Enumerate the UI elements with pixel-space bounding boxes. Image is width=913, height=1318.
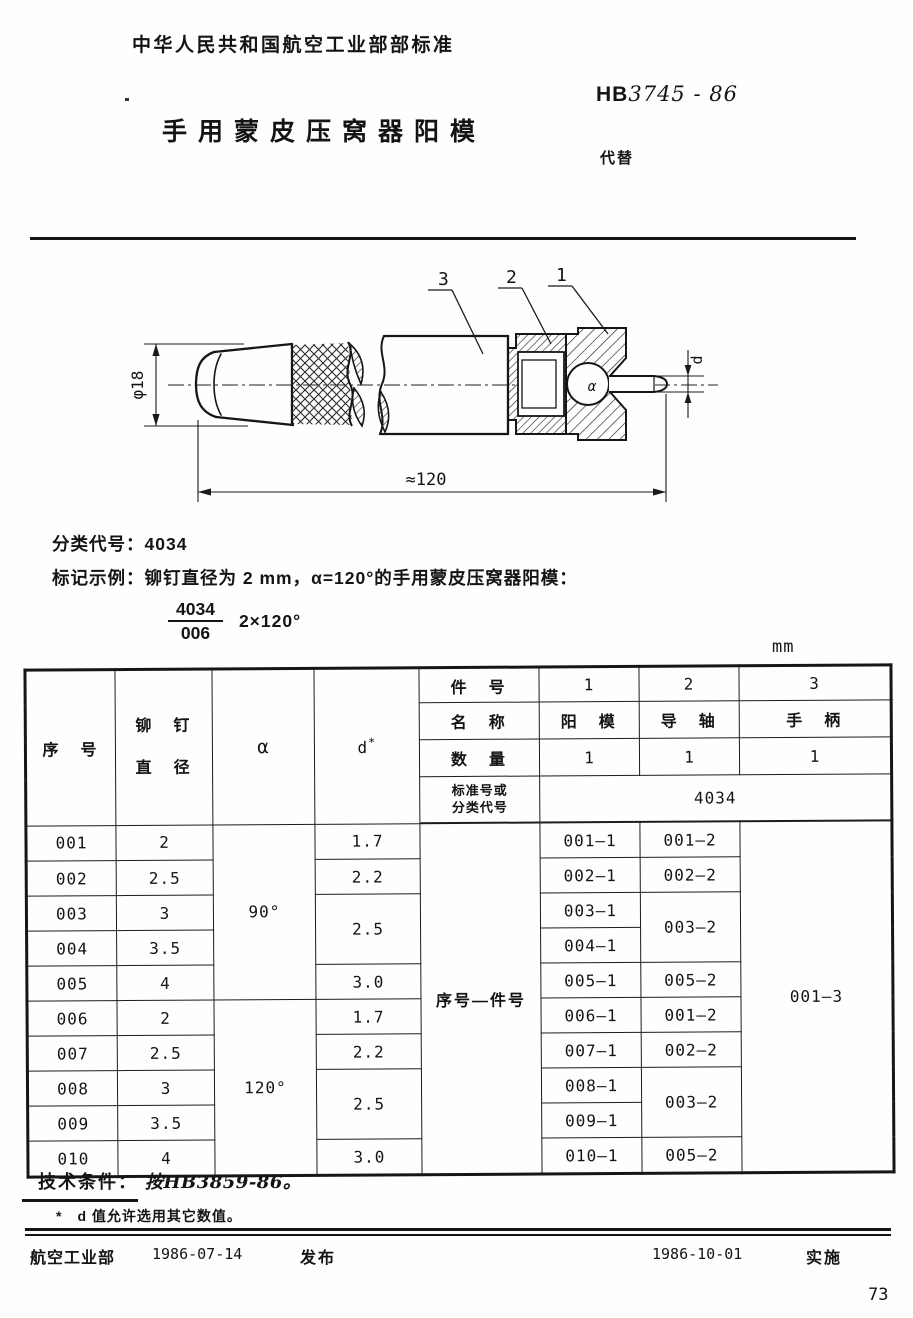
dim-length-label: ≈120 (406, 470, 447, 490)
implementation-label: 实施 (806, 1244, 842, 1268)
standard-number: HB3745 - 86 (596, 82, 738, 107)
break-lens-3 (378, 392, 388, 432)
document-page: 中华人民共和国航空工业部部标准 HB3745 - 86 手用蒙皮压窝器阳模 代替 (0, 0, 913, 1318)
cell-span-label: 序号—件号 (420, 822, 542, 1174)
cell-dia: 2.5 (117, 1035, 214, 1071)
page-title: 手用蒙皮压窝器阳模 (162, 112, 486, 148)
header-rule (30, 237, 856, 240)
arrow-up (152, 344, 159, 356)
designation-fraction: 4034 006 (168, 599, 223, 643)
cell-p2: 001—2 (641, 997, 741, 1033)
qty-1: 1 (539, 738, 639, 776)
arrow-left (198, 488, 211, 495)
header-rivet-line1: 铆 钉 (116, 706, 212, 748)
cell-seq: 001 (26, 825, 116, 861)
callout-3: 3 (438, 269, 449, 290)
designation-suffix: 2×120° (239, 611, 301, 632)
cell-p1: 006—1 (541, 997, 641, 1033)
footer-rule (25, 1228, 891, 1236)
header-std-code: 标准号或 分类代号 (420, 776, 540, 823)
tech-conditions-value: 按HB3859-86。 (145, 1172, 301, 1193)
cell-p1: 009—1 (542, 1102, 642, 1138)
cell-p1: 007—1 (541, 1032, 641, 1068)
unit-label: mm (772, 637, 794, 657)
cell-p1: 002—1 (540, 857, 640, 893)
publish-label: 发布 (300, 1244, 336, 1268)
cell-p2: 005—2 (641, 962, 741, 998)
replaces-label: 代替 (600, 147, 634, 168)
item-no-2: 2 (639, 666, 739, 702)
spec-table-wrap: 序 号 铆 钉 直 径 α d* 件 号 1 2 3 名 称 阳 模 导 轴 手… (23, 663, 892, 1178)
cell-p1: 004—1 (541, 927, 641, 963)
fraction-denominator: 006 (168, 622, 223, 643)
cell-p2: 003—2 (640, 892, 740, 963)
name-2: 导 轴 (639, 701, 739, 739)
cell-seq: 004 (27, 931, 117, 967)
cell-p2: 005—2 (642, 1137, 742, 1174)
name-1: 阳 模 (539, 701, 639, 739)
tech-conditions: 技术条件： 按HB3859-86。 (38, 1168, 301, 1194)
cell-dia: 2.5 (116, 860, 213, 896)
header-std-line1: 标准号或 (420, 782, 539, 800)
cell-dia: 2 (117, 1000, 214, 1036)
header-std-line2: 分类代号 (420, 799, 539, 817)
spec-table: 序 号 铆 钉 直 径 α d* 件 号 1 2 3 名 称 阳 模 导 轴 手… (23, 663, 895, 1178)
header-rivet-line2: 直 径 (116, 747, 212, 789)
cell-d: 2.2 (315, 859, 420, 895)
cell-dia: 3.5 (117, 930, 214, 966)
header-name: 名 称 (419, 702, 539, 740)
item-no-3: 3 (739, 665, 891, 701)
cell-p1: 005—1 (541, 962, 641, 998)
qty-2: 1 (639, 738, 739, 776)
cell-dia: 2 (116, 824, 213, 860)
cell-handle-part: 001—3 (740, 820, 894, 1172)
angle-label: α (588, 379, 597, 395)
name-3: 手 柄 (739, 700, 891, 738)
marking-example: 标记示例：铆钉直径为 2 mm，α=120°的手用蒙皮压窝器阳模： (52, 565, 578, 590)
cell-dia: 4 (117, 965, 214, 1001)
table-row: 001 2 90° 1.7 序号—件号 001—1 001—2 001—3 (26, 820, 892, 861)
cell-seq: 006 (27, 1001, 117, 1037)
cell-dia: 3 (116, 895, 213, 931)
cell-seq: 007 (27, 1036, 117, 1072)
header-qty: 数 量 (419, 739, 539, 777)
item-no-1: 1 (539, 666, 639, 702)
cell-dia: 3.5 (118, 1105, 215, 1141)
cell-dia: 3 (117, 1070, 214, 1106)
header-d-base: d (357, 738, 368, 757)
drawing-svg: φ18 (116, 264, 732, 522)
break-lens-1 (350, 344, 363, 384)
cell-p1: 008—1 (541, 1067, 641, 1103)
cell-d: 2.5 (316, 1069, 421, 1140)
issue-date: 1986-07-14 (152, 1245, 242, 1263)
standard-org-line: 中华人民共和国航空工业部部标准 (132, 30, 455, 57)
tech-underline (22, 1199, 138, 1202)
arrow-down (152, 414, 159, 426)
header-alpha: α (212, 668, 315, 824)
part-2-inner (518, 352, 564, 416)
cell-seq: 009 (28, 1106, 118, 1142)
cell-d: 3.0 (316, 964, 421, 1000)
header-rivet-dia: 铆 钉 直 径 (115, 669, 213, 825)
cell-seq: 002 (26, 861, 116, 897)
cell-seq: 008 (27, 1071, 117, 1107)
cell-p2: 002—2 (641, 1032, 741, 1068)
arrow-right (653, 488, 666, 495)
callout-2: 2 (506, 267, 517, 288)
page-number: 73 (868, 1285, 888, 1305)
classification-code: 分类代号：4034 (52, 531, 187, 556)
technical-drawing: φ18 (116, 264, 732, 522)
std-code-value: 4034 (540, 774, 892, 823)
qty-3: 1 (739, 737, 891, 775)
standard-prefix: HB (596, 83, 628, 106)
cell-d: 1.7 (316, 999, 421, 1035)
cell-p2: 003—2 (641, 1067, 741, 1138)
fraction-numerator: 4034 (168, 599, 223, 622)
dim-diameter-label: φ18 (128, 371, 147, 400)
dim-d-label: d (688, 355, 706, 364)
callout-1: 1 (556, 265, 567, 286)
footnote-d-value: * d 值允许选用其它数值。 (56, 1206, 242, 1226)
cell-seq: 003 (26, 896, 116, 932)
implementation-date: 1986-10-01 (652, 1245, 742, 1263)
issuer: 航空工业部 (30, 1244, 115, 1268)
cell-alpha-group: 90° (213, 824, 316, 1000)
scan-speck (125, 98, 129, 101)
break-lens-2 (353, 388, 365, 426)
cell-d: 2.5 (315, 894, 420, 965)
arrow-d-top (685, 365, 692, 376)
cell-p2: 001—2 (640, 821, 740, 857)
cell-alpha-group: 120° (214, 999, 317, 1176)
cell-d: 1.7 (315, 823, 420, 859)
header-item-no: 件 号 (419, 667, 539, 703)
designation-example: 4034 006 2×120° (168, 599, 301, 643)
standard-number-value: 3745 - 86 (628, 82, 738, 106)
arrow-d-bottom (685, 392, 692, 403)
cell-seq: 005 (27, 966, 117, 1002)
cell-d: 2.2 (316, 1034, 421, 1070)
cell-d: 3.0 (317, 1139, 422, 1176)
cell-p1: 001—1 (540, 822, 640, 858)
cell-p2: 002—2 (640, 857, 740, 893)
pin-shape (609, 376, 667, 393)
header-d-star: * (368, 736, 376, 750)
tech-conditions-label: 技术条件： (38, 1172, 138, 1192)
header-d: d* (314, 668, 420, 824)
header-seq: 序 号 (25, 670, 116, 826)
cell-p1: 003—1 (540, 892, 640, 928)
knurl-section (293, 343, 352, 425)
cell-p1: 010—1 (542, 1137, 642, 1174)
